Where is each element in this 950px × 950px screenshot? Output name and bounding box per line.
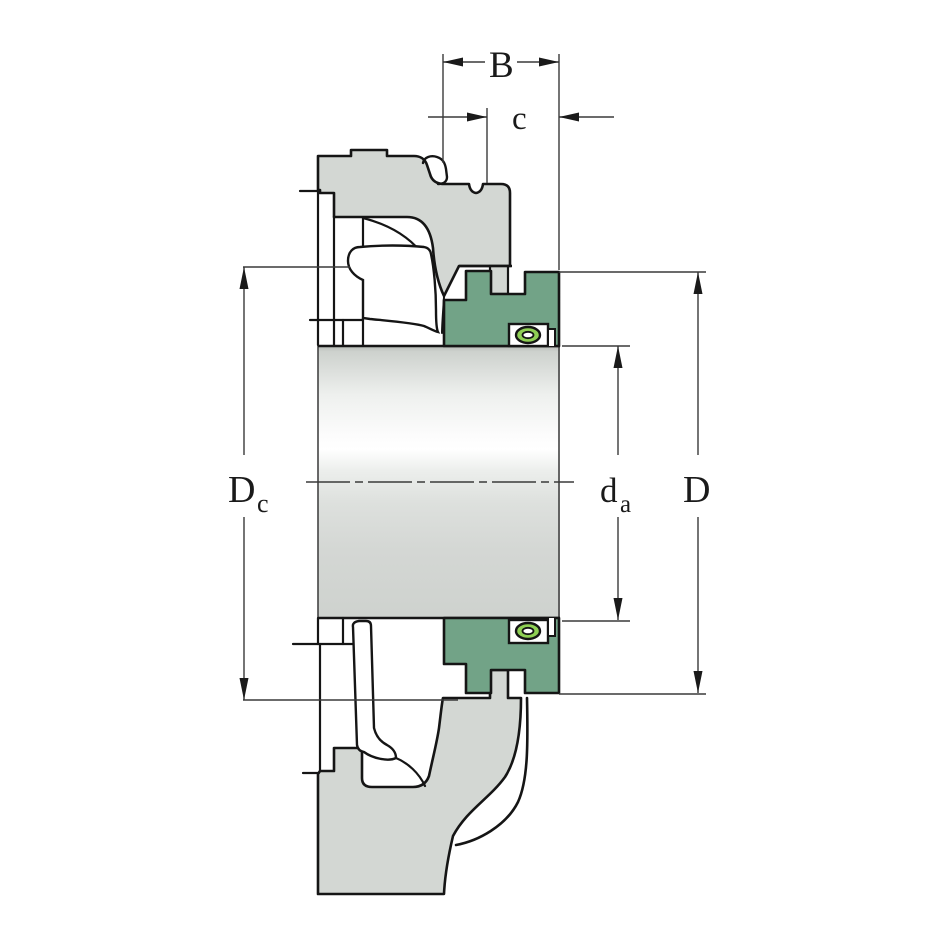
arrow-up — [240, 267, 249, 289]
label-c: c — [512, 101, 527, 137]
label-D: D — [683, 469, 710, 511]
lower-cavity-floor-curve — [396, 758, 425, 786]
label-B: B — [489, 45, 514, 86]
upper-oring-hole — [523, 332, 534, 338]
housing-spigot-upper — [490, 266, 508, 294]
arrow-left — [559, 113, 579, 122]
label-da-sub: a — [620, 491, 631, 518]
arrow-down — [694, 671, 703, 693]
label-da-base: d — [600, 471, 618, 510]
arrow-right — [539, 58, 559, 67]
arrow-down — [240, 678, 249, 700]
lower-oring-hole — [523, 628, 534, 634]
label-Dc-base: D — [228, 469, 255, 511]
bearing-cross-section-diagram: B c D c d a D — [0, 0, 950, 950]
upper-seal-step — [548, 329, 555, 346]
arrow-up — [694, 272, 703, 294]
technical-drawing-canvas: B c D c d a D — [0, 0, 950, 950]
lower-seal-step — [548, 618, 555, 636]
arrow-left — [443, 58, 463, 67]
arrow-down — [614, 598, 623, 620]
lower-housing-body — [318, 670, 521, 894]
arrow-up — [614, 346, 623, 368]
dimension-da — [562, 346, 630, 621]
lower-sleeve — [353, 621, 396, 760]
arrow-right — [467, 113, 487, 122]
label-Dc-sub: c — [257, 489, 269, 518]
